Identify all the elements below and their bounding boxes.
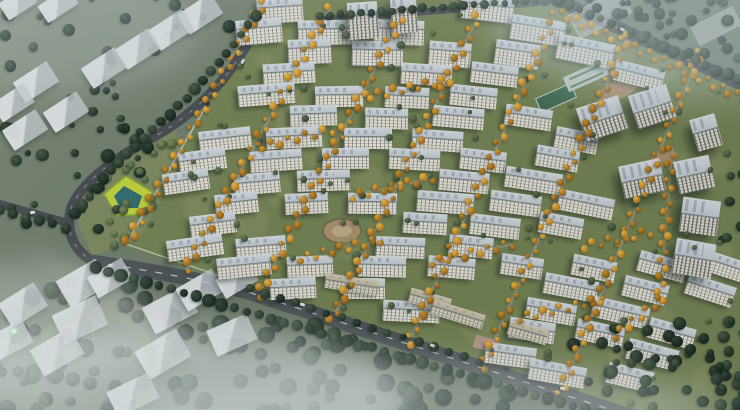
autumn-tree [573, 300, 579, 306]
context-trees-northwest-tree [71, 149, 79, 157]
apartment-slab [701, 250, 740, 287]
autumn-tree [216, 211, 224, 219]
artery-median-trees [445, 348, 453, 356]
ghost-building [81, 47, 128, 89]
roadside-trees [0, 0, 740, 410]
apartment-slab [266, 126, 323, 149]
northeast-road-trees [585, 10, 595, 20]
apartment-slab [287, 255, 334, 277]
building-roof [628, 84, 672, 114]
autumn-tree [341, 295, 349, 303]
context-trees-northwest-tree [44, 17, 53, 26]
apartment-slab [235, 235, 287, 259]
courtyard-trees-southeast-tree [722, 360, 732, 370]
courtyard-trees-tree [516, 167, 521, 172]
autumn-tree [518, 78, 526, 86]
autumn-tree [187, 125, 193, 131]
courtyard-trees-tree [267, 92, 271, 96]
apartment-slab [621, 274, 669, 304]
autumn-tree [406, 82, 412, 88]
apartment-slab [556, 188, 615, 219]
west-road-trees-2 [173, 101, 183, 111]
autumn-tree [560, 8, 566, 14]
courtyard-trees-southeast-tree [671, 359, 679, 367]
car [505, 366, 511, 370]
playground [473, 334, 500, 353]
courtyard-trees-tree [222, 124, 227, 129]
northeast-road-trees [637, 32, 649, 44]
branch-road-trees [34, 215, 45, 226]
context-trees-northwest-tree [102, 50, 113, 61]
building-facade [298, 29, 355, 46]
apartment-slab [296, 169, 349, 190]
autumn-tree [551, 194, 557, 200]
autumn-tree [502, 322, 507, 327]
context-trees-northwest-tree [108, 57, 117, 66]
main-artery-lane-markings [92, 262, 642, 410]
context-trees-east-tree [725, 197, 734, 206]
forest-band-south-tree [103, 399, 116, 410]
autumn-tree [346, 247, 352, 253]
autumn-tree [549, 30, 555, 36]
lens-flare-ring [30, 307, 158, 410]
courtyard-trees-tree [409, 85, 416, 92]
autumn-tree [263, 117, 268, 122]
ghost-building [51, 295, 108, 344]
building-roof [383, 299, 440, 311]
building-facade [200, 135, 253, 153]
building-facade [236, 244, 287, 260]
autumn-tree [588, 21, 595, 28]
forest-band-south-tree [113, 391, 121, 399]
forest-band-south-tree [412, 401, 428, 410]
autumn-tree [186, 269, 192, 275]
building-facade [509, 22, 565, 46]
autumn-tree [439, 94, 445, 100]
lawn-patch [636, 311, 659, 334]
forest-band-south-tree [198, 322, 208, 332]
courtyard-trees-tree [707, 318, 713, 324]
building-roof [608, 361, 655, 381]
courtyard-trees-southeast-tree [584, 377, 593, 386]
context-trees-east-tree [718, 236, 726, 244]
autumn-tree [256, 142, 261, 147]
apartment-slab [403, 212, 448, 235]
courtyard-trees-tree [302, 115, 309, 122]
building-roof [486, 342, 538, 358]
apartment-slab [428, 40, 472, 67]
apartment-slab [525, 297, 578, 325]
context-trees-northeast-tree [670, 31, 677, 38]
autumn-tree [308, 182, 315, 189]
building-roof [430, 40, 473, 52]
apartment-slab [178, 147, 227, 173]
courtyard-trees-tree [653, 249, 658, 254]
car [30, 210, 35, 214]
apartment-slab [528, 358, 587, 388]
autumn-tree [613, 335, 619, 341]
context-trees-east-tree [732, 378, 740, 390]
autumn-tree [300, 196, 307, 203]
context-trees-northwest-tree [69, 122, 75, 128]
autumn-tree [627, 211, 633, 217]
courtyard-trees-tree [266, 273, 270, 277]
northeast-road-trees [553, 0, 565, 7]
artery-south-trees [404, 353, 416, 365]
courtyard-trees-tree [663, 110, 668, 115]
internal-street [332, 16, 478, 320]
autumn-tree [451, 54, 458, 61]
north-road-trees [449, 2, 459, 12]
north-road-trees [502, 0, 509, 7]
building-facade [432, 114, 484, 130]
park-trees-tree [121, 233, 130, 242]
forest-band-south-tree [424, 383, 434, 393]
courtyard-trees-tree [241, 235, 248, 242]
courtyard-trees-tree [414, 183, 421, 190]
autumn-tree [609, 256, 614, 261]
autumn-tree [526, 64, 533, 71]
courtyard-trees-southeast-tree [684, 351, 692, 359]
context-trees-northeast-tree [625, 0, 631, 6]
building-roof [417, 190, 474, 203]
autumn-tree [603, 77, 608, 82]
courtyard-trees-tree [708, 167, 713, 172]
autumn-tree [367, 228, 375, 236]
courtyard-trees-tree [562, 41, 567, 46]
lawn-patch [206, 131, 230, 155]
courtyard-trees-tree [301, 84, 308, 91]
west-road-trees-1 [237, 31, 244, 38]
northeast-road-trees [701, 61, 710, 70]
forest-band-south-tree [274, 316, 283, 325]
west-road-trees-3 [77, 199, 89, 211]
building-roof [358, 256, 406, 266]
autumn-tree [353, 257, 361, 265]
building-roof [389, 147, 440, 159]
apartment-slab [216, 253, 272, 278]
building-facade [391, 8, 419, 34]
plaza-east-2 [648, 147, 679, 170]
branch-road-trees [0, 205, 5, 215]
building-roof [284, 192, 328, 203]
autumn-tree [605, 280, 612, 287]
car [668, 49, 674, 53]
apartment-slab [590, 296, 650, 329]
courtyard-trees-tree [696, 336, 702, 342]
park-trees-tree [119, 206, 128, 215]
lawn-patch [374, 87, 401, 114]
autumn-tree [666, 145, 672, 151]
autumn-tree [658, 240, 665, 247]
apartment-slab [636, 250, 688, 282]
autumn-tree [706, 75, 712, 81]
autumn-tree [430, 178, 436, 184]
context-trees-northwest-tree [90, 84, 101, 95]
context-trees-east-tree [720, 366, 729, 375]
building-roof [439, 168, 489, 182]
autumn-tree [391, 196, 396, 201]
artery-south-trees [180, 289, 188, 297]
courtyard-trees-tree [290, 255, 296, 261]
context-trees-northwest-tree [117, 124, 125, 132]
building-facade [290, 113, 337, 127]
autumn-tree [276, 141, 284, 149]
park-trees-tree [150, 202, 158, 210]
autumn-tree [259, 7, 266, 14]
building-facade [625, 347, 677, 372]
autumn-tree [667, 64, 673, 70]
building-roof [352, 41, 403, 51]
north-road-trees [408, 5, 417, 14]
autumn-tree [249, 10, 257, 18]
courtyard-trees-tree [257, 138, 263, 144]
apartment-slab [250, 148, 304, 172]
courtyard-trees-tree [545, 349, 552, 356]
autumn-tree [668, 185, 675, 192]
autumn-tree [493, 247, 499, 253]
west-road-trees-3 [114, 158, 123, 167]
autumn-tree [188, 135, 193, 140]
forest-band-south-tree [166, 309, 182, 325]
autumn-tree [631, 236, 637, 242]
courtyard-trees-southeast-tree [604, 367, 616, 379]
ghost-building [0, 282, 48, 328]
road-branch-west [0, 202, 72, 224]
artery-south-trees [167, 284, 176, 293]
building-facade [525, 305, 577, 325]
autumn-tree [318, 27, 325, 34]
ghost-building [115, 28, 162, 70]
building-facade [324, 280, 379, 296]
internal-street [128, 2, 264, 242]
context-trees-northwest-tree [134, 167, 145, 178]
forest-band-south-tree [442, 372, 455, 385]
autumn-tree [231, 182, 239, 190]
courtyard-trees-tree [359, 192, 366, 199]
park-trees-tree [157, 140, 166, 149]
autumn-tree [279, 98, 285, 104]
building-facade [297, 178, 350, 191]
autumn-tree [226, 54, 233, 61]
artery-median-trees [307, 304, 316, 313]
courtyard-trees-southeast-tree [663, 330, 675, 342]
building-facade [190, 220, 237, 238]
forest-band-south-tree [110, 393, 119, 402]
building-roof [573, 254, 618, 272]
artery-median-trees [429, 342, 439, 352]
car [48, 214, 53, 218]
car [300, 302, 306, 306]
context-trees-east-tree [718, 331, 730, 343]
autumn-tree [372, 184, 379, 191]
autumn-tree [675, 61, 683, 69]
park-trees-tree [142, 176, 149, 183]
park-trees-tree [120, 208, 127, 215]
context-trees-northeast-tree [696, 53, 704, 61]
residential-tower [576, 95, 628, 141]
courtyard-trees-southeast-tree [638, 386, 649, 397]
courtyard-trees-southeast-tree [719, 384, 726, 391]
west-road-trees-1 [206, 66, 216, 76]
autumn-tree [690, 72, 696, 78]
west-road-trees-1 [250, 10, 262, 22]
autumn-tree [559, 188, 566, 195]
forest-band-south-tree [307, 317, 324, 334]
entry-plaza-band-1 [569, 64, 603, 80]
autumn-tree [514, 293, 520, 299]
building-facade [543, 281, 598, 303]
autumn-tree [573, 14, 581, 22]
autumn-tree [648, 232, 654, 238]
autumn-tree [392, 32, 399, 39]
courtyard-trees-tree [188, 171, 194, 177]
courtyard-trees-southeast-tree [697, 396, 709, 408]
autumn-tree [416, 86, 422, 92]
fog-bank [0, 265, 160, 395]
forest-band-south-tree [66, 372, 80, 386]
autumn-tree [375, 51, 382, 58]
ghost-building [142, 285, 198, 334]
forest-band-south-tree [347, 334, 358, 345]
car [205, 100, 210, 106]
fog-bank [490, 0, 740, 98]
courtyard-trees-tree [628, 399, 635, 406]
autumn-tree [361, 243, 368, 250]
forest-band-south-tree [109, 380, 122, 393]
apartment-slab [235, 17, 283, 45]
context-trees-northwest-tree [0, 30, 11, 41]
autumn-tree [212, 92, 218, 98]
artery-median-trees [246, 284, 254, 292]
context-trees-east-tree [715, 384, 727, 396]
autumn-tree [662, 265, 669, 272]
autumn-tree [546, 218, 553, 225]
lawn-patch [218, 125, 248, 155]
autumn-tree [131, 232, 139, 240]
autumn-tree [339, 286, 347, 294]
courtyard-trees-southeast-tree [642, 325, 653, 336]
apartment-slab [198, 126, 252, 152]
autumn-tree [658, 137, 663, 142]
autumn-tree [510, 244, 516, 250]
building-facade [677, 171, 716, 194]
autumn-tree [422, 78, 429, 85]
autumn-tree [235, 40, 240, 45]
artery-median-trees [276, 294, 285, 303]
autumn-tree [466, 26, 472, 32]
context-trees-east-tree [709, 365, 721, 377]
courtyard-trees-tree [246, 75, 250, 79]
autumn-tree [670, 169, 676, 175]
building-roof [325, 273, 379, 288]
autumn-tree [447, 79, 454, 86]
autumn-tree [667, 132, 672, 137]
forest-band-south-tree [199, 335, 208, 344]
autumn-tree [294, 221, 302, 229]
autumn-tree [602, 270, 609, 277]
forest-band-south-tree [66, 327, 82, 343]
context-trees-east-tree [727, 172, 735, 180]
forest-band-south-tree [25, 368, 41, 384]
lawn-patch [698, 273, 724, 299]
building-facade [503, 113, 552, 132]
north-road-trees [480, 0, 489, 9]
autumn-tree [472, 183, 479, 190]
branch-road-trees [21, 213, 31, 223]
playground-sand [485, 344, 498, 354]
autumn-tree [129, 222, 137, 230]
courtyard-trees-tree [227, 194, 232, 199]
building-facade [684, 281, 734, 307]
vehicles [0, 0, 740, 410]
autumn-tree [362, 244, 367, 249]
ghost-building [87, 258, 134, 299]
autumn-tree [636, 207, 641, 212]
forest-band-south-tree [137, 291, 153, 307]
autumn-tree [574, 354, 582, 362]
autumn-tree [461, 254, 469, 262]
perimeter-road-northeast-lane-markings [544, 0, 740, 88]
west-road-trees-2 [139, 133, 149, 143]
autumn-tree [452, 227, 460, 235]
northeast-road-trees [648, 37, 659, 48]
autumn-tree [203, 106, 211, 114]
apartment-slab [214, 190, 259, 214]
autumn-tree [383, 37, 389, 43]
autumn-tree [621, 230, 629, 238]
autumn-tree [410, 142, 416, 148]
courtyard-trees-southeast-tree [707, 349, 715, 357]
forest-band-south-tree [113, 346, 125, 358]
autumn-tree [544, 209, 550, 215]
courtyard-trees-tree [353, 251, 361, 259]
apartment-slab [233, 171, 281, 195]
courtyard-trees-tree [651, 376, 656, 381]
lawn-patch [689, 168, 715, 194]
forest-band-south-tree [265, 405, 279, 410]
apartment-slab [500, 253, 545, 279]
artery-south-trees [494, 379, 503, 388]
lawn-patch [703, 148, 731, 176]
autumn-tree [334, 301, 339, 306]
autumn-tree [657, 257, 663, 263]
context-trees-northwest-tree [110, 80, 116, 86]
forest-band-south-tree [20, 376, 29, 385]
ghost-building [30, 328, 85, 377]
building-facade [348, 201, 398, 214]
artery-south-trees [430, 362, 439, 371]
west-road-trees-2 [131, 142, 141, 152]
context-trees-east-tree [724, 372, 732, 380]
autumn-tree [661, 281, 667, 287]
park-trees-tree [105, 175, 112, 182]
forest-band-south-tree [280, 378, 297, 395]
context-trees-northeast-tree [641, 13, 650, 22]
courtyard-trees-tree [397, 104, 402, 109]
courtyard-trees-tree [427, 173, 433, 179]
autumn-tree [584, 315, 591, 322]
autumn-tree [493, 139, 499, 145]
building-facade [348, 14, 380, 40]
courtyard-trees-tree [407, 309, 411, 313]
lawn-patch [341, 143, 361, 163]
courtyard-trees-tree [288, 88, 292, 92]
autumn-tree [319, 125, 326, 132]
artery-south-trees [279, 318, 289, 328]
forest-band-south-tree [44, 282, 61, 299]
northeast-road-trees [691, 55, 701, 65]
